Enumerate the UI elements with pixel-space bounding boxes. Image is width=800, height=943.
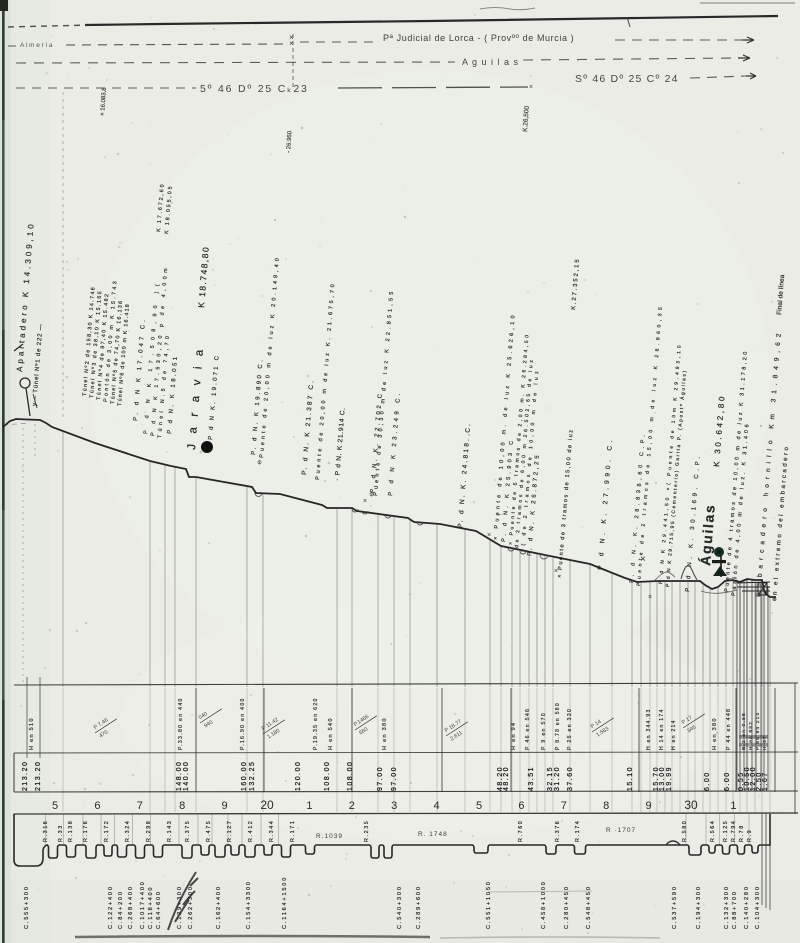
svg-text:C.458+1000: C.458+1000 (541, 880, 547, 929)
svg-text:R.375: R.375 (185, 820, 191, 842)
svg-text:R.324: R.324 (125, 820, 131, 842)
svg-text:15.10: 15.10 (627, 766, 634, 791)
svg-text:C.132+300: C.132+300 (724, 885, 730, 929)
svg-text:30: 30 (684, 798, 698, 812)
svg-text:13.00: 13.00 (659, 766, 666, 791)
svg-text:1.67: 1.67 (762, 771, 769, 791)
svg-text:160.00: 160.00 (241, 761, 248, 791)
svg-text:97.00: 97.00 (377, 766, 384, 791)
svg-text:8: 8 (179, 800, 185, 812)
svg-text:8: 8 (603, 800, 609, 812)
svg-text:213.20: 213.20 (35, 761, 42, 791)
svg-text:C.268+400: C.268+400 (128, 885, 134, 929)
svg-text:120.00: 120.00 (295, 761, 302, 791)
svg-text:R.174: R.174 (575, 820, 581, 842)
svg-text:R.143: R.143 (167, 820, 173, 842)
svg-text:C.537+590: C.537+590 (672, 885, 678, 929)
svg-text:48.20: 48.20 (503, 766, 510, 791)
svg-text:H 14 en 174: H 14 en 174 (659, 708, 665, 750)
svg-text:C.84+200: C.84+200 (118, 890, 124, 929)
svg-text:32.15: 32.15 (547, 766, 554, 791)
svg-text:R.138: R.138 (68, 820, 74, 842)
svg-text:×: × (487, 532, 491, 539)
svg-text:A g u i l a s: A g u i l a s (462, 57, 519, 67)
svg-text:37.60: 37.60 (567, 766, 574, 791)
svg-text:H en 94: H en 94 (511, 722, 517, 750)
svg-text:R.316: R.316 (43, 820, 49, 842)
svg-text:7: 7 (137, 800, 143, 812)
svg-text:×: × (640, 554, 646, 565)
svg-text:×: × (363, 498, 367, 505)
svg-text:5: 5 (52, 800, 58, 812)
svg-text:43.51: 43.51 (528, 766, 535, 791)
svg-text:R.412: R.412 (248, 820, 254, 842)
svg-text:R.9: R.9 (747, 829, 753, 842)
svg-text:97.00: 97.00 (391, 766, 398, 791)
svg-text:4: 4 (434, 800, 440, 812)
svg-text:Pª Judicial de Lorca - ( Provº: Pª Judicial de Lorca - ( Provºº de Murci… (383, 33, 574, 43)
svg-text:P.19.35 en 620: P.19.35 en 620 (313, 697, 319, 750)
svg-text:9: 9 (222, 800, 228, 812)
svg-text:C.162+400: C.162+400 (216, 885, 222, 929)
svg-text:C.88+700: C.88+700 (732, 890, 738, 929)
svg-text:H en 214: H en 214 (671, 719, 677, 750)
svg-text:R.33: R.33 (58, 824, 64, 842)
svg-text:C.104+300: C.104+300 (755, 885, 761, 929)
svg-text:R.794: R.794 (731, 820, 737, 842)
svg-text:C.548+450: C.548+450 (586, 885, 592, 929)
svg-text:6: 6 (94, 800, 100, 812)
svg-text:R.1039: R.1039 (316, 833, 343, 840)
svg-text:P 8.78 en 580: P 8.78 en 580 (555, 702, 561, 750)
svg-text:R.78: R.78 (739, 824, 745, 842)
svg-text:C.289+600: C.289+600 (416, 885, 422, 929)
svg-text:19.99: 19.99 (666, 766, 673, 791)
svg-text:C.64+600: C.64+600 (156, 890, 162, 929)
svg-text:C.555+300: C.555+300 (24, 885, 30, 929)
svg-text:×: × (529, 84, 533, 91)
svg-text:C.280+450: C.280+450 (564, 885, 570, 929)
svg-text:P.33.80 en 440: P.33.80 en 440 (178, 697, 184, 750)
svg-text:×: × (289, 33, 294, 42)
svg-text:R.235: R.235 (364, 820, 370, 842)
svg-text:P.16.90 en 400: P.16.90 en 400 (240, 697, 246, 750)
svg-text:P 46 en 546: P 46 en 546 (525, 708, 531, 750)
svg-text:R.475: R.475 (206, 820, 212, 842)
svg-text:1: 1 (306, 800, 312, 812)
svg-text:C.118+400: C.118+400 (148, 886, 154, 929)
svg-text:7: 7 (561, 800, 567, 812)
svg-text:C.551+1050: C.551+1050 (486, 880, 492, 929)
svg-text:R.344: R.344 (269, 820, 275, 842)
svg-text:C.122+400: C.122+400 (108, 885, 114, 929)
svg-text:R.376: R.376 (555, 820, 561, 842)
svg-text:C.154+3300: C.154+3300 (246, 880, 252, 929)
svg-text:132.25: 132.25 (249, 761, 256, 791)
svg-text:×: × (648, 594, 652, 601)
svg-text:P 9 en 570: P 9 en 570 (541, 712, 547, 750)
svg-text:C.1017+400: C.1017+400 (140, 880, 146, 929)
svg-text:×: × (554, 568, 558, 575)
svg-text:108.00: 108.00 (324, 761, 331, 791)
svg-text:R.172: R.172 (104, 820, 110, 842)
svg-text:140.00: 140.00 (183, 761, 190, 791)
svg-text:R.125: R.125 (723, 820, 729, 842)
svg-text:2: 2 (349, 800, 355, 812)
svg-text:R.171: R.171 (290, 820, 296, 842)
svg-text:C.140+280: C.140+280 (744, 885, 750, 929)
svg-text:9: 9 (646, 800, 652, 812)
svg-text:R ·1707: R ·1707 (606, 827, 636, 834)
svg-text:31.20: 31.20 (554, 766, 561, 791)
svg-text:5º 46 Dº 25 Cₖ23: 5º 46 Dº 25 Cₖ23 (200, 83, 309, 95)
svg-text:R.176: R.176 (83, 820, 89, 842)
svg-text:20: 20 (260, 798, 274, 812)
svg-text:148.00: 148.00 (176, 761, 183, 791)
svg-text:A l m e r i a: A l m e r i a (20, 42, 53, 49)
svg-text:Sº 46 Dº 25 Cº 24: Sº 46 Dº 25 Cº 24 (575, 73, 679, 85)
svg-text:1: 1 (730, 800, 736, 812)
svg-text:H en 380: H en 380 (382, 717, 388, 750)
svg-text:←: ← (497, 511, 504, 518)
svg-text:6.00: 6.00 (704, 771, 711, 791)
svg-text:H en 510: H en 510 (29, 717, 35, 750)
svg-text:P 44 en 448: P 44 en 448 (726, 708, 732, 750)
svg-text:P 25 en 320: P 25 en 320 (567, 708, 573, 750)
svg-text:C.1164+1500: C.1164+1500 (282, 876, 288, 929)
svg-text:6: 6 (518, 800, 524, 812)
svg-text:R.760: R.760 (518, 820, 524, 842)
svg-text:5: 5 (476, 800, 482, 812)
svg-text:C.194+300: C.194+300 (696, 885, 702, 929)
svg-text:R.564: R.564 (710, 820, 716, 842)
svg-text:R.298: R.298 (146, 820, 152, 842)
svg-text:H en 540: H en 540 (328, 717, 334, 750)
svg-text:R.580: R.580 (682, 820, 688, 842)
svg-text:C.540+300: C.540+300 (397, 885, 403, 929)
svg-text:213.20: 213.20 (22, 761, 29, 791)
svg-text:108.00: 108.00 (347, 761, 354, 791)
svg-text:H en 344.93: H en 344.93 (646, 708, 652, 750)
svg-text:3: 3 (391, 800, 397, 812)
svg-text:R. 1748: R. 1748 (418, 831, 448, 838)
svg-text:6.00: 6.00 (724, 771, 731, 791)
